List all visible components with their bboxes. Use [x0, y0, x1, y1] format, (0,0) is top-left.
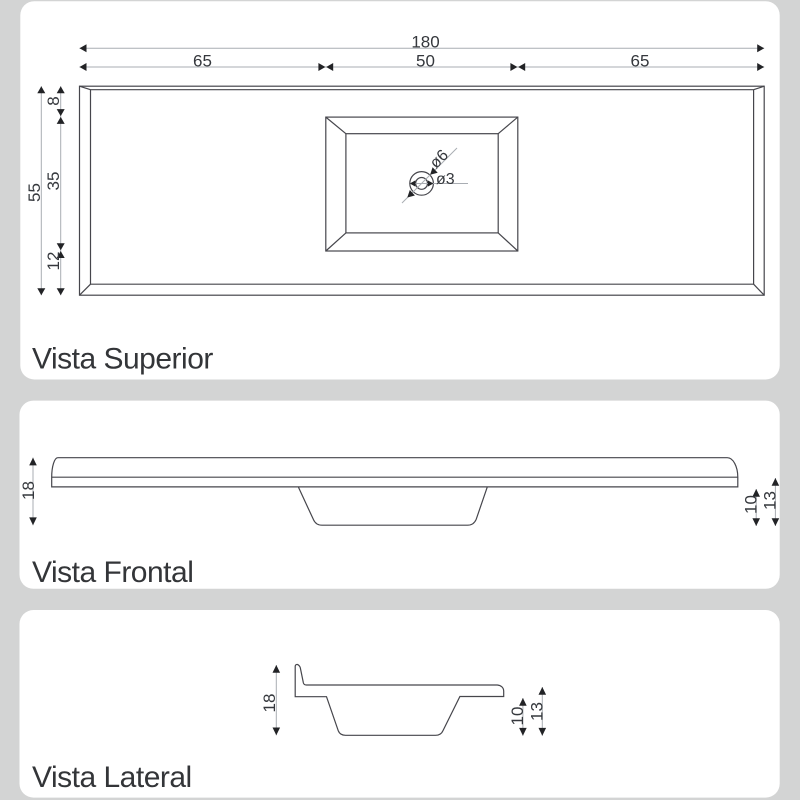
svg-text:8: 8 — [44, 96, 63, 105]
svg-text:Vista Frontal: Vista Frontal — [32, 556, 193, 589]
svg-text:65: 65 — [193, 51, 212, 70]
svg-text:Vista Superior: Vista Superior — [32, 343, 213, 376]
svg-text:55: 55 — [25, 183, 44, 202]
svg-text:50: 50 — [416, 51, 435, 70]
svg-text:35: 35 — [44, 172, 63, 191]
svg-text:18: 18 — [19, 481, 38, 500]
svg-text:Vista Lateral: Vista Lateral — [32, 761, 192, 794]
svg-text:10: 10 — [508, 707, 527, 726]
svg-text:180: 180 — [411, 33, 439, 52]
svg-text:10: 10 — [742, 495, 761, 514]
svg-text:18: 18 — [260, 694, 279, 713]
svg-text:65: 65 — [631, 51, 650, 70]
svg-text:12: 12 — [44, 252, 63, 271]
svg-text:13: 13 — [761, 491, 780, 510]
svg-text:ø3: ø3 — [436, 171, 455, 188]
svg-text:13: 13 — [528, 702, 547, 721]
